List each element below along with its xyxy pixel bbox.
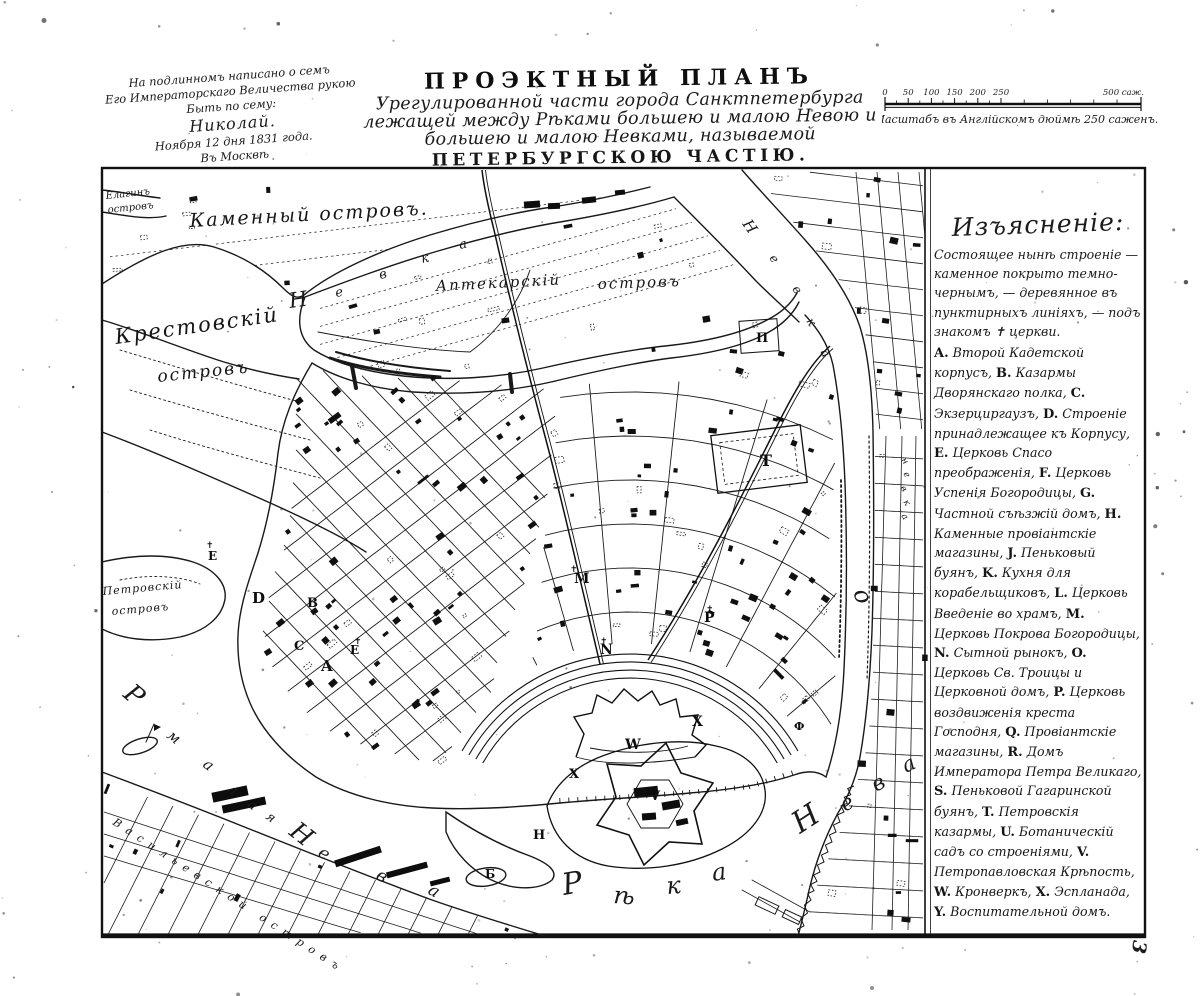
stone-building-mark — [894, 391, 902, 396]
stone-building-mark — [889, 237, 899, 245]
legend-entry-text: Экзерциргаузъ, — [934, 406, 1043, 421]
street-west — [434, 380, 545, 498]
stone-building-mark — [335, 446, 341, 452]
wooden-building-mark — [599, 509, 604, 514]
noise-dot — [964, 949, 966, 951]
street-vyborg — [839, 280, 923, 290]
noise-dot — [13, 977, 15, 979]
legend-entry-key: W. — [934, 885, 951, 900]
noise-dot — [312, 98, 314, 100]
stone-building-mark — [284, 280, 290, 285]
wooden-building-mark — [140, 235, 147, 240]
noise-dot — [360, 452, 363, 455]
stone-building-mark — [432, 480, 440, 488]
stone-building-mark — [785, 589, 792, 596]
noise-dot — [56, 319, 58, 321]
stone-building-mark — [425, 700, 432, 707]
reference-letter: Ф — [794, 720, 804, 733]
noise-dot — [476, 983, 478, 985]
noise-speck — [236, 993, 240, 996]
stone-building-mark — [433, 609, 441, 617]
stone-building-mark — [884, 815, 889, 820]
wooden-building-mark — [357, 421, 364, 427]
noise-dot — [227, 331, 229, 333]
noise-dot — [658, 571, 659, 572]
stone-building-mark — [519, 414, 525, 420]
legend-entry-key: L. — [1054, 586, 1068, 601]
noise-speck — [1161, 572, 1164, 575]
street-vasilyevsky — [469, 916, 478, 934]
noise-dot — [205, 235, 207, 237]
wooden-building-mark — [740, 371, 748, 378]
noise-dot — [1041, 191, 1043, 193]
street-vasilyevsky — [349, 880, 376, 934]
stone-building-mark — [916, 374, 921, 378]
noise-dot — [179, 529, 181, 531]
river-letter: в — [867, 769, 889, 796]
landmark-building — [676, 818, 689, 826]
legend-entry-key: N. — [934, 646, 950, 661]
quay-ticks — [560, 771, 793, 803]
stone-building-mark — [616, 418, 623, 422]
noise-dot — [1097, 182, 1098, 183]
noise-dot — [845, 857, 846, 858]
wooden-building-mark — [465, 364, 470, 369]
street-vyborg — [816, 251, 923, 264]
river-letter: Н — [738, 215, 761, 238]
stone-building-mark — [294, 422, 301, 428]
noise-dot — [811, 109, 814, 112]
noise-speck — [41, 18, 46, 23]
legend-entry-key: S. — [934, 784, 947, 799]
noise-dot — [910, 248, 912, 250]
stone-building-mark — [659, 238, 663, 242]
stone-building-mark — [382, 631, 389, 637]
noise-dot — [902, 947, 904, 949]
river-letter: в — [790, 283, 805, 297]
noise-dot — [215, 811, 217, 813]
street-east — [875, 510, 923, 513]
karpovka-south-bank — [312, 302, 799, 393]
street-east — [840, 832, 924, 837]
noise-speck — [1156, 486, 1159, 489]
stone-building-mark — [285, 529, 291, 535]
stone-building-mark — [888, 834, 897, 837]
river-letter: в — [898, 484, 909, 494]
wooden-building-mark — [398, 317, 407, 322]
landmark-building — [582, 196, 597, 203]
stone-building-mark — [780, 657, 787, 664]
landmark-building — [642, 813, 656, 821]
noise-dot — [620, 290, 621, 291]
stone-building-mark — [773, 668, 784, 679]
wooden-building-mark — [654, 224, 661, 229]
islet-flagpole — [146, 724, 154, 742]
legend-entry-key: X. — [1036, 885, 1051, 900]
reference-letters: ABCDEЕМNPПTVWXXБНФ — [208, 331, 804, 881]
noise-dot — [593, 954, 596, 957]
petrovsky-island-coast — [102, 556, 225, 640]
noise-dot — [541, 221, 543, 223]
stone-building-mark — [697, 630, 703, 636]
noise-dot — [1193, 936, 1194, 937]
garden-dash — [150, 430, 320, 478]
noise-dot — [1174, 479, 1176, 481]
wooden-building-mark — [555, 456, 564, 463]
noise-dot — [2, 912, 5, 915]
legend-entry-key: C. — [1071, 386, 1086, 401]
legend-intro: Состоящее нынѣ строеніе — каменное покры… — [934, 245, 1142, 341]
noise-dot — [598, 253, 599, 254]
stone-building-mark — [799, 529, 806, 535]
legend: Изъясненіе: Состоящее нынѣ строеніе — ка… — [934, 210, 1142, 922]
stone-building-mark — [336, 419, 343, 426]
wooden-building-mark — [439, 567, 444, 572]
noise-dot — [309, 863, 312, 866]
street-west — [330, 583, 525, 731]
street-vyborg — [855, 308, 923, 316]
street-west — [307, 539, 536, 713]
wooden-building-mark — [497, 532, 504, 539]
noise-dot — [273, 223, 275, 225]
stone-building-mark — [741, 614, 750, 622]
landmark-building — [661, 799, 680, 810]
street-west — [284, 545, 461, 733]
stone-building-mark — [328, 678, 338, 688]
wooden-building-mark — [637, 487, 641, 493]
reference-letter: E — [208, 549, 217, 563]
noise-dot — [392, 40, 394, 42]
noise-dot — [1154, 473, 1156, 475]
reference-letter: Б — [485, 867, 495, 881]
street-east — [892, 436, 902, 930]
kazarmy-square — [711, 425, 807, 494]
stone-building-mark — [620, 427, 625, 433]
legend-header: Изъясненіе: — [934, 206, 1143, 242]
legend-entry-key: M. — [1066, 607, 1085, 622]
noise-dot — [769, 929, 771, 931]
noise-dot — [961, 119, 963, 121]
scanned-map-page: На подлинномъ написано о семъ Его Импера… — [0, 0, 1200, 996]
legend-entry-text: Кронверкъ, — [951, 884, 1035, 899]
wooden-building-mark — [438, 756, 447, 764]
noise-dot — [849, 288, 851, 290]
small-islet — [121, 734, 160, 758]
bridge-mark — [510, 374, 512, 392]
stone-building-mark — [827, 218, 832, 224]
wooden-building-mark — [304, 662, 312, 670]
reference-letter: N — [600, 642, 613, 658]
street-west — [273, 455, 552, 667]
wooden-building-mark — [665, 517, 674, 523]
plate-number: 3 — [1127, 939, 1150, 955]
river-letter: Р — [117, 678, 151, 713]
shore-block — [782, 910, 802, 925]
kazarmy-square-inner — [720, 434, 799, 485]
noise-dot — [503, 900, 505, 902]
noise-dot — [564, 337, 566, 339]
stone-building-mark — [789, 572, 799, 581]
noise-dot — [679, 788, 680, 789]
stone-building-mark — [739, 558, 744, 565]
island-labels-group: ЕлагинъостровъКаменный островъ.Крестовск… — [101, 186, 681, 976]
landmark-building — [548, 203, 560, 209]
stone-building-mark — [392, 616, 401, 625]
stone-building-mark — [664, 491, 669, 498]
wooden-building-mark — [344, 619, 351, 626]
street-east — [858, 779, 923, 783]
zayachy-island — [547, 742, 765, 868]
noise-dot — [487, 261, 490, 264]
stone-building-mark — [295, 396, 304, 405]
noise-dot — [154, 772, 156, 774]
river-letter: а — [200, 755, 218, 775]
noise-dot — [756, 29, 757, 30]
noise-speck — [276, 22, 280, 26]
street-east — [849, 806, 923, 810]
legend-entry-key: R. — [1007, 745, 1022, 760]
river-letter: м — [164, 726, 185, 748]
noise-dot — [827, 420, 829, 422]
reference-letter: Н — [533, 828, 545, 843]
stone-building-mark — [886, 709, 895, 716]
stone-building-mark — [104, 784, 110, 795]
stone-building-mark — [922, 655, 928, 661]
noise-dot — [247, 590, 249, 592]
street-east — [875, 537, 923, 540]
stone-building-mark — [373, 329, 380, 335]
noise-dot — [1151, 643, 1153, 645]
stone-building-mark — [321, 636, 330, 645]
street-radial — [787, 676, 835, 717]
noise-dot — [496, 734, 498, 736]
river-letter: к — [901, 498, 913, 509]
stone-building-mark — [702, 315, 710, 322]
stone-building-mark — [305, 679, 314, 688]
noise-dot — [146, 929, 147, 930]
river-letter: ѣ — [613, 881, 636, 910]
legend-entry-key: A. — [934, 346, 949, 361]
wooden-building-mark — [780, 694, 788, 702]
noise-dot — [804, 754, 806, 756]
noise-dot — [372, 598, 375, 601]
street-west — [296, 378, 515, 610]
legend-entry-text: Частной съѣзжій домъ, — [934, 506, 1105, 521]
noise-dot — [597, 136, 599, 138]
stone-building-mark — [778, 351, 785, 357]
street-west — [323, 370, 524, 583]
reference-letter: D — [252, 589, 265, 607]
noise-dot — [281, 300, 283, 302]
stone-building-mark — [533, 495, 539, 501]
noise-dot — [272, 158, 274, 160]
noise-dot — [1180, 496, 1182, 498]
island-label: островъ — [156, 357, 250, 387]
street-vasilyevsky — [379, 889, 402, 934]
noise-dot — [875, 319, 877, 321]
noise-dot — [410, 651, 411, 652]
stone-building-mark — [432, 616, 442, 626]
noise-dot — [243, 27, 245, 29]
island-label: Петровскій — [101, 578, 183, 598]
stone-building-mark — [877, 369, 883, 374]
noise-dot — [170, 876, 173, 879]
stone-building-mark — [398, 397, 405, 404]
noise-dot — [875, 682, 877, 684]
noise-dot — [764, 802, 765, 803]
river-letter: к — [665, 871, 682, 900]
legend-entry-text: Церковь Покрова Богородицы, — [934, 626, 1140, 641]
garden-line — [320, 209, 676, 309]
stone-building-mark — [430, 688, 440, 697]
stone-building-mark — [882, 318, 890, 324]
wooden-building-mark — [446, 572, 454, 580]
noise-dot — [1134, 993, 1136, 995]
noise-dot — [428, 73, 430, 75]
noise-dot — [19, 199, 21, 201]
wooden-building-mark — [660, 625, 667, 631]
street-east — [873, 672, 923, 675]
bridge-mark — [352, 366, 356, 388]
stone-building-mark — [821, 594, 831, 603]
reference-letter: W — [624, 737, 641, 753]
street-west — [398, 378, 539, 527]
noise-dot — [856, 5, 857, 6]
embankment-dash — [839, 480, 841, 658]
noise-dot — [866, 956, 868, 958]
stone-building-mark — [408, 602, 415, 609]
stone-building-mark — [728, 545, 733, 552]
island-label: островъ — [111, 600, 170, 618]
river-letter: е — [901, 470, 912, 480]
stone-building-mark — [873, 177, 880, 183]
noise-dot — [773, 397, 775, 399]
noise-dot — [1011, 24, 1012, 25]
noise-dot — [546, 805, 548, 807]
stone-building-mark — [435, 532, 445, 541]
noise-dot — [474, 794, 475, 795]
landmark-building — [334, 846, 382, 867]
wooden-building-mark — [113, 268, 122, 271]
river-letter: а — [710, 857, 728, 887]
noise-speck — [1183, 430, 1186, 433]
stone-building-mark — [644, 464, 651, 469]
reference-letter: М — [574, 571, 590, 587]
noise-dot — [469, 522, 471, 524]
street-vasilyevsky — [409, 898, 427, 934]
reference-letter: X — [569, 767, 580, 782]
noise-dot — [719, 736, 720, 737]
noise-dot — [610, 12, 613, 15]
stone-building-mark — [480, 476, 489, 485]
island-label: Елагинъ — [104, 186, 151, 202]
wooden-building-mark — [774, 176, 782, 181]
stone-building-mark — [348, 303, 357, 309]
stone-building-mark — [417, 474, 429, 484]
stone-building-mark — [389, 595, 398, 603]
stone-building-mark — [673, 468, 678, 473]
wooden-building-mark — [590, 324, 595, 331]
legend-entry-key: Y. — [934, 905, 946, 920]
street-west — [296, 414, 506, 637]
noise-dot — [506, 963, 508, 965]
noise-dot — [123, 914, 125, 916]
noise-dot — [815, 285, 817, 287]
stone-building-mark — [906, 839, 918, 842]
noise-dot — [182, 702, 185, 705]
island-label: островъ — [107, 200, 154, 216]
stone-building-mark — [901, 917, 910, 923]
stone-building-mark — [296, 407, 301, 412]
noise-speck — [72, 386, 75, 389]
stone-building-mark — [505, 421, 510, 427]
tuchkov-spit — [446, 812, 554, 888]
noise-dot — [197, 712, 199, 714]
noise-dot — [569, 686, 572, 689]
petersburg-east-coast — [805, 315, 846, 777]
street-east — [871, 699, 923, 702]
noise-dot — [158, 942, 160, 944]
noise-dot — [565, 667, 567, 669]
stone-building-mark — [634, 570, 640, 575]
wooden-building-mark — [822, 243, 832, 250]
wooden-building-mark — [821, 491, 825, 495]
river-letter: а — [898, 750, 920, 777]
river-letter: Н — [284, 815, 321, 853]
noise-dot — [674, 935, 676, 937]
noise-dot — [1, 897, 3, 899]
noise-dot — [257, 215, 259, 217]
noise-dot — [839, 773, 841, 775]
stone-building-mark — [650, 510, 657, 516]
stone-building-mark — [887, 910, 894, 916]
noise-speck — [94, 609, 97, 612]
noise-speck — [1156, 432, 1160, 436]
noise-dot — [189, 133, 190, 134]
noise-dot — [1017, 125, 1019, 127]
noise-dot — [306, 154, 307, 155]
stone-building-mark — [705, 649, 714, 657]
legend-entry-text: Церковь Спасо преображенія, — [934, 445, 1052, 480]
noise-dot — [22, 369, 24, 371]
street-vyborg — [877, 172, 901, 429]
wooden-building-mark — [828, 890, 836, 897]
stone-building-mark — [501, 317, 509, 323]
landmark-building — [386, 862, 428, 879]
river-letter: я — [263, 809, 279, 826]
legend-entry-text: Воспитательной домъ. — [946, 904, 1110, 919]
river-letter: е — [334, 285, 344, 301]
legend-entry-key: E. — [934, 446, 948, 461]
island-label: Аптекарскій — [434, 270, 561, 295]
reference-letter: C — [294, 639, 304, 654]
street-west — [362, 376, 530, 554]
stone-building-mark — [729, 409, 733, 415]
stone-building-mark — [528, 520, 538, 529]
legend-entry-key: V. — [1077, 845, 1089, 860]
stone-building-mark — [772, 539, 778, 545]
stone-building-mark — [302, 446, 311, 455]
noise-dot — [709, 487, 711, 489]
noise-dot — [555, 33, 558, 36]
reference-letter: X — [692, 714, 703, 730]
noise-dot — [1196, 849, 1198, 851]
ne-boulevard — [648, 346, 830, 660]
noise-dot — [73, 565, 75, 567]
stone-building-mark — [708, 428, 717, 434]
wooden-building-mark — [387, 556, 394, 563]
noise-speck — [1051, 9, 1054, 12]
